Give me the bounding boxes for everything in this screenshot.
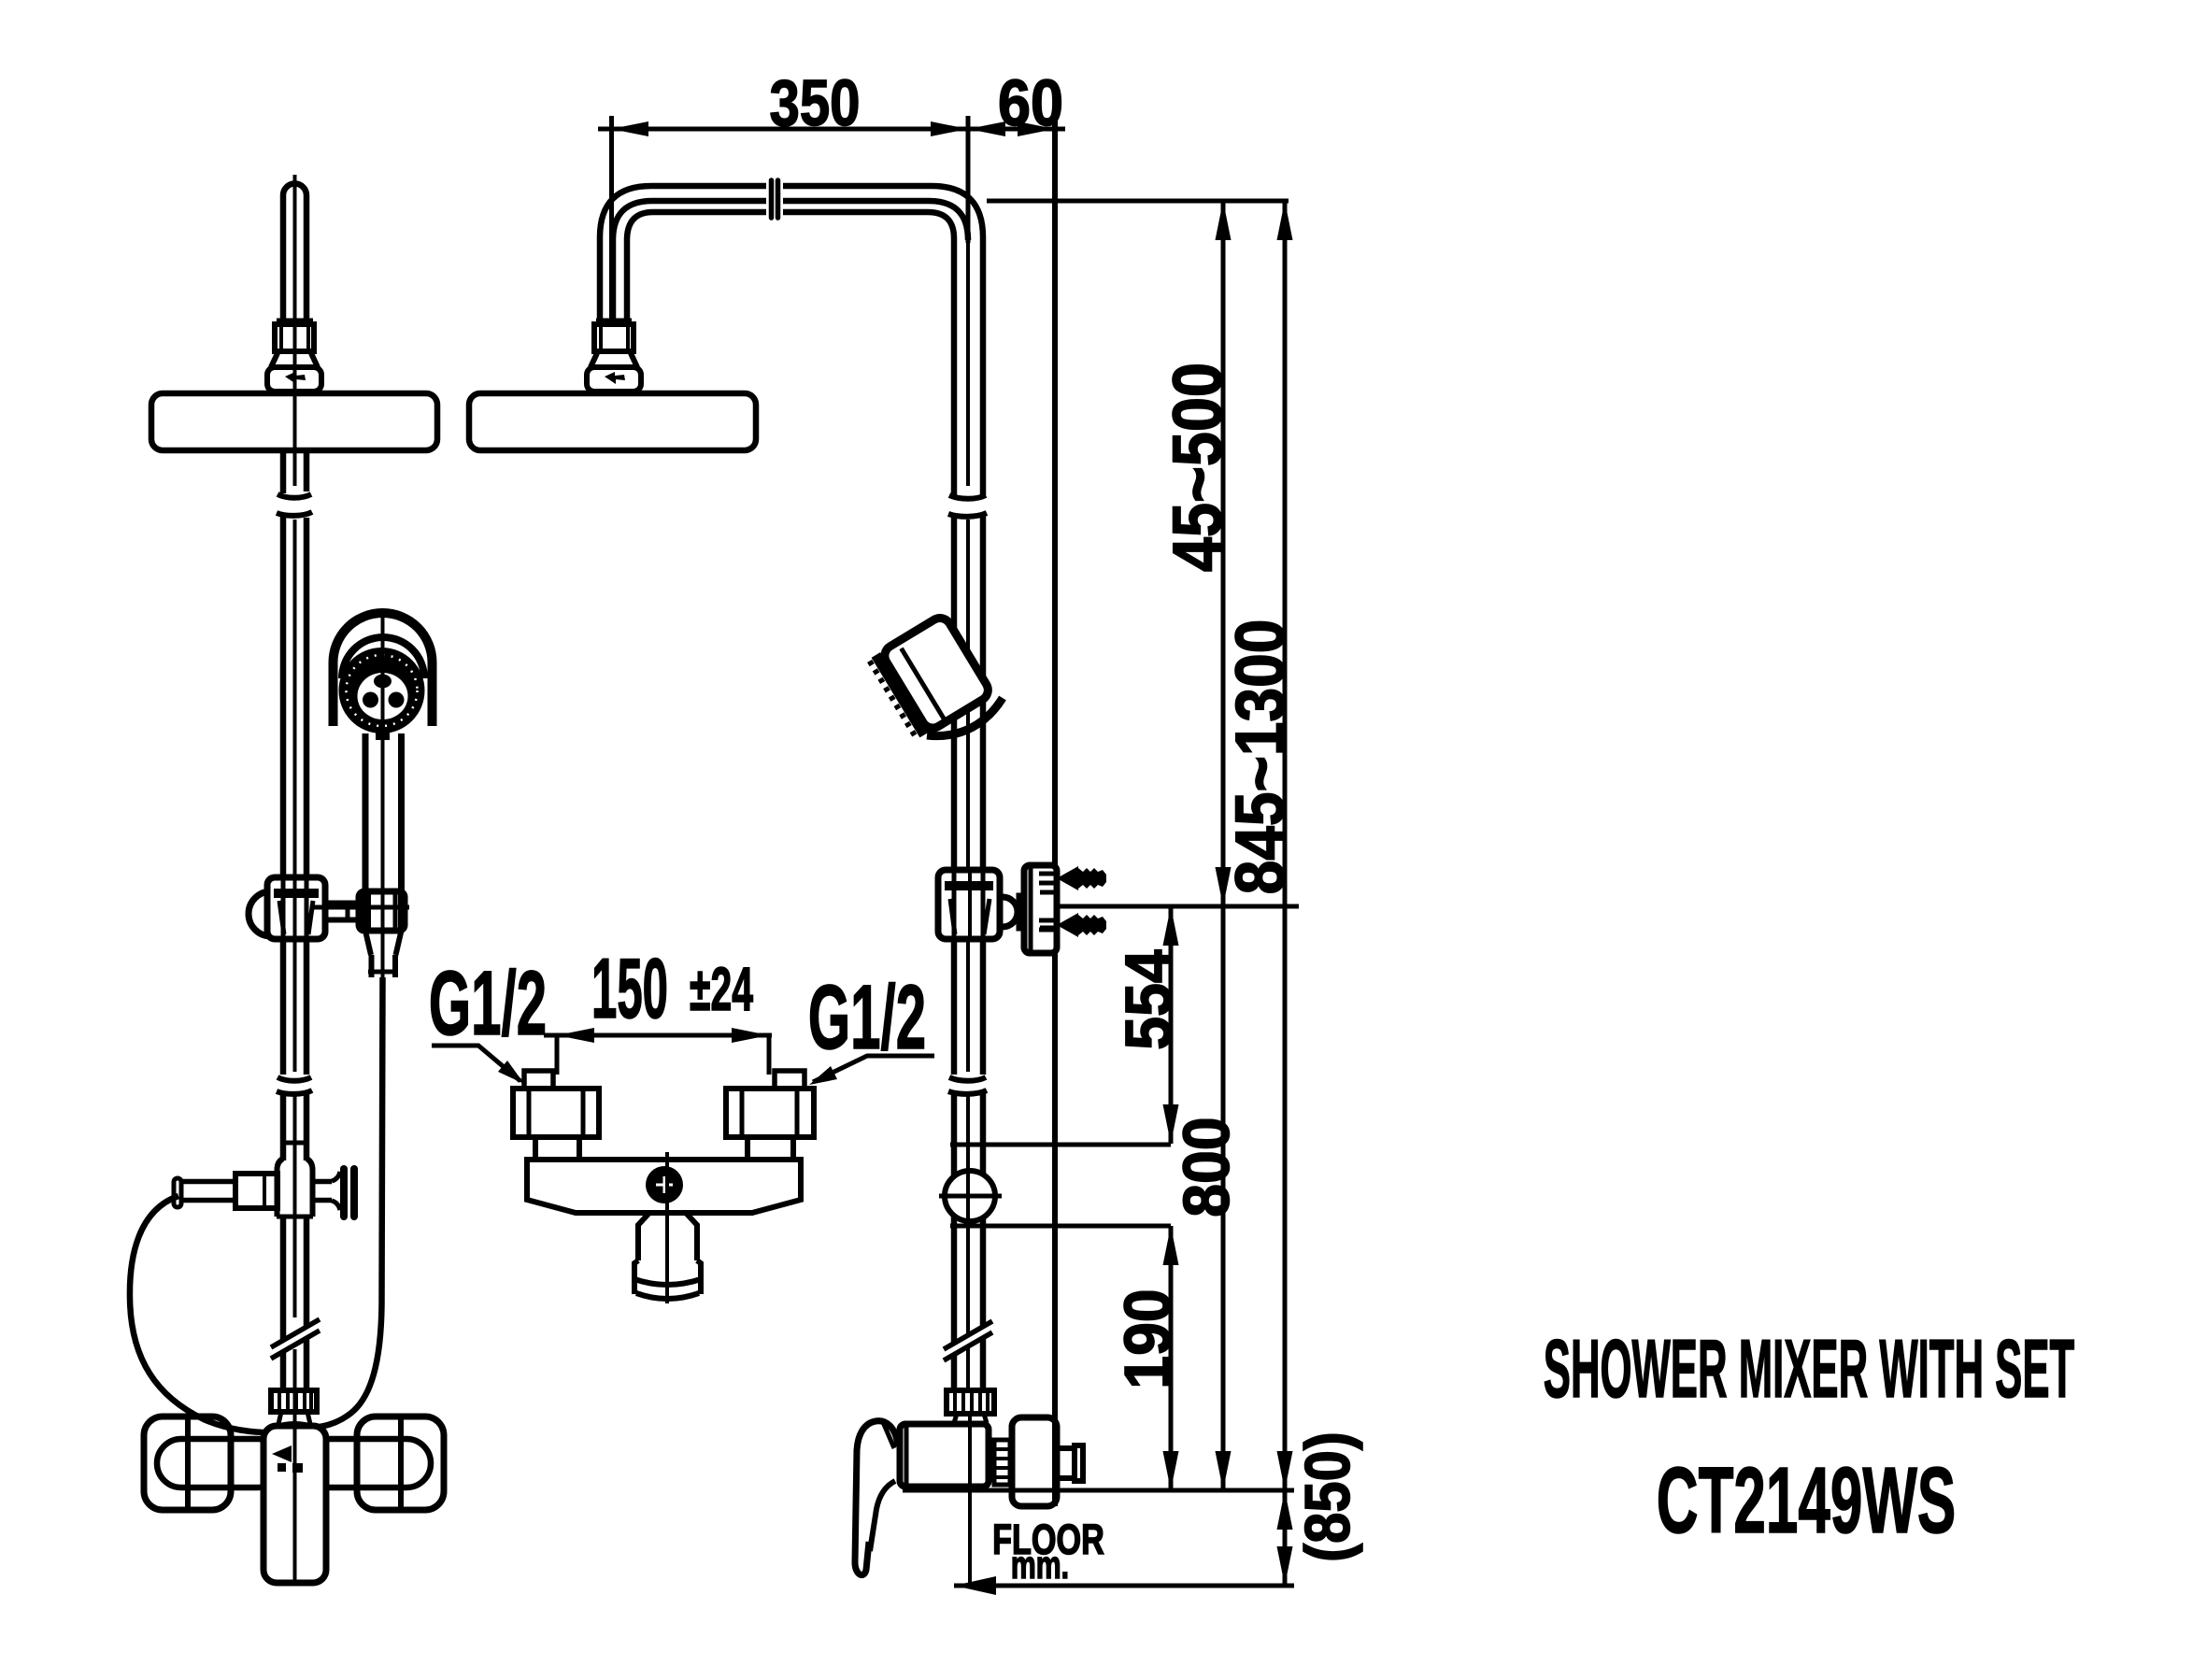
svg-text:554: 554	[1113, 949, 1186, 1050]
svg-text:G1/2: G1/2	[429, 953, 547, 1054]
svg-text:G1/2: G1/2	[808, 967, 926, 1068]
svg-text:CT2149WS: CT2149WS	[1657, 1448, 1956, 1553]
svg-text:190: 190	[1112, 1288, 1185, 1388]
svg-text:SHOWER MIXER WITH SET: SHOWER MIXER WITH SET	[1544, 1322, 2074, 1415]
svg-text:±24: ±24	[690, 954, 753, 1024]
svg-text:845~1300: 845~1300	[1221, 619, 1298, 895]
svg-text:mm.: mm.	[1011, 1543, 1069, 1587]
svg-text:45~500: 45~500	[1159, 363, 1236, 572]
svg-text:150: 150	[591, 942, 668, 1036]
svg-text:350: 350	[770, 66, 861, 139]
svg-text:(850): (850)	[1291, 1431, 1362, 1562]
svg-text:60: 60	[998, 67, 1063, 140]
svg-text:800: 800	[1171, 1117, 1244, 1217]
